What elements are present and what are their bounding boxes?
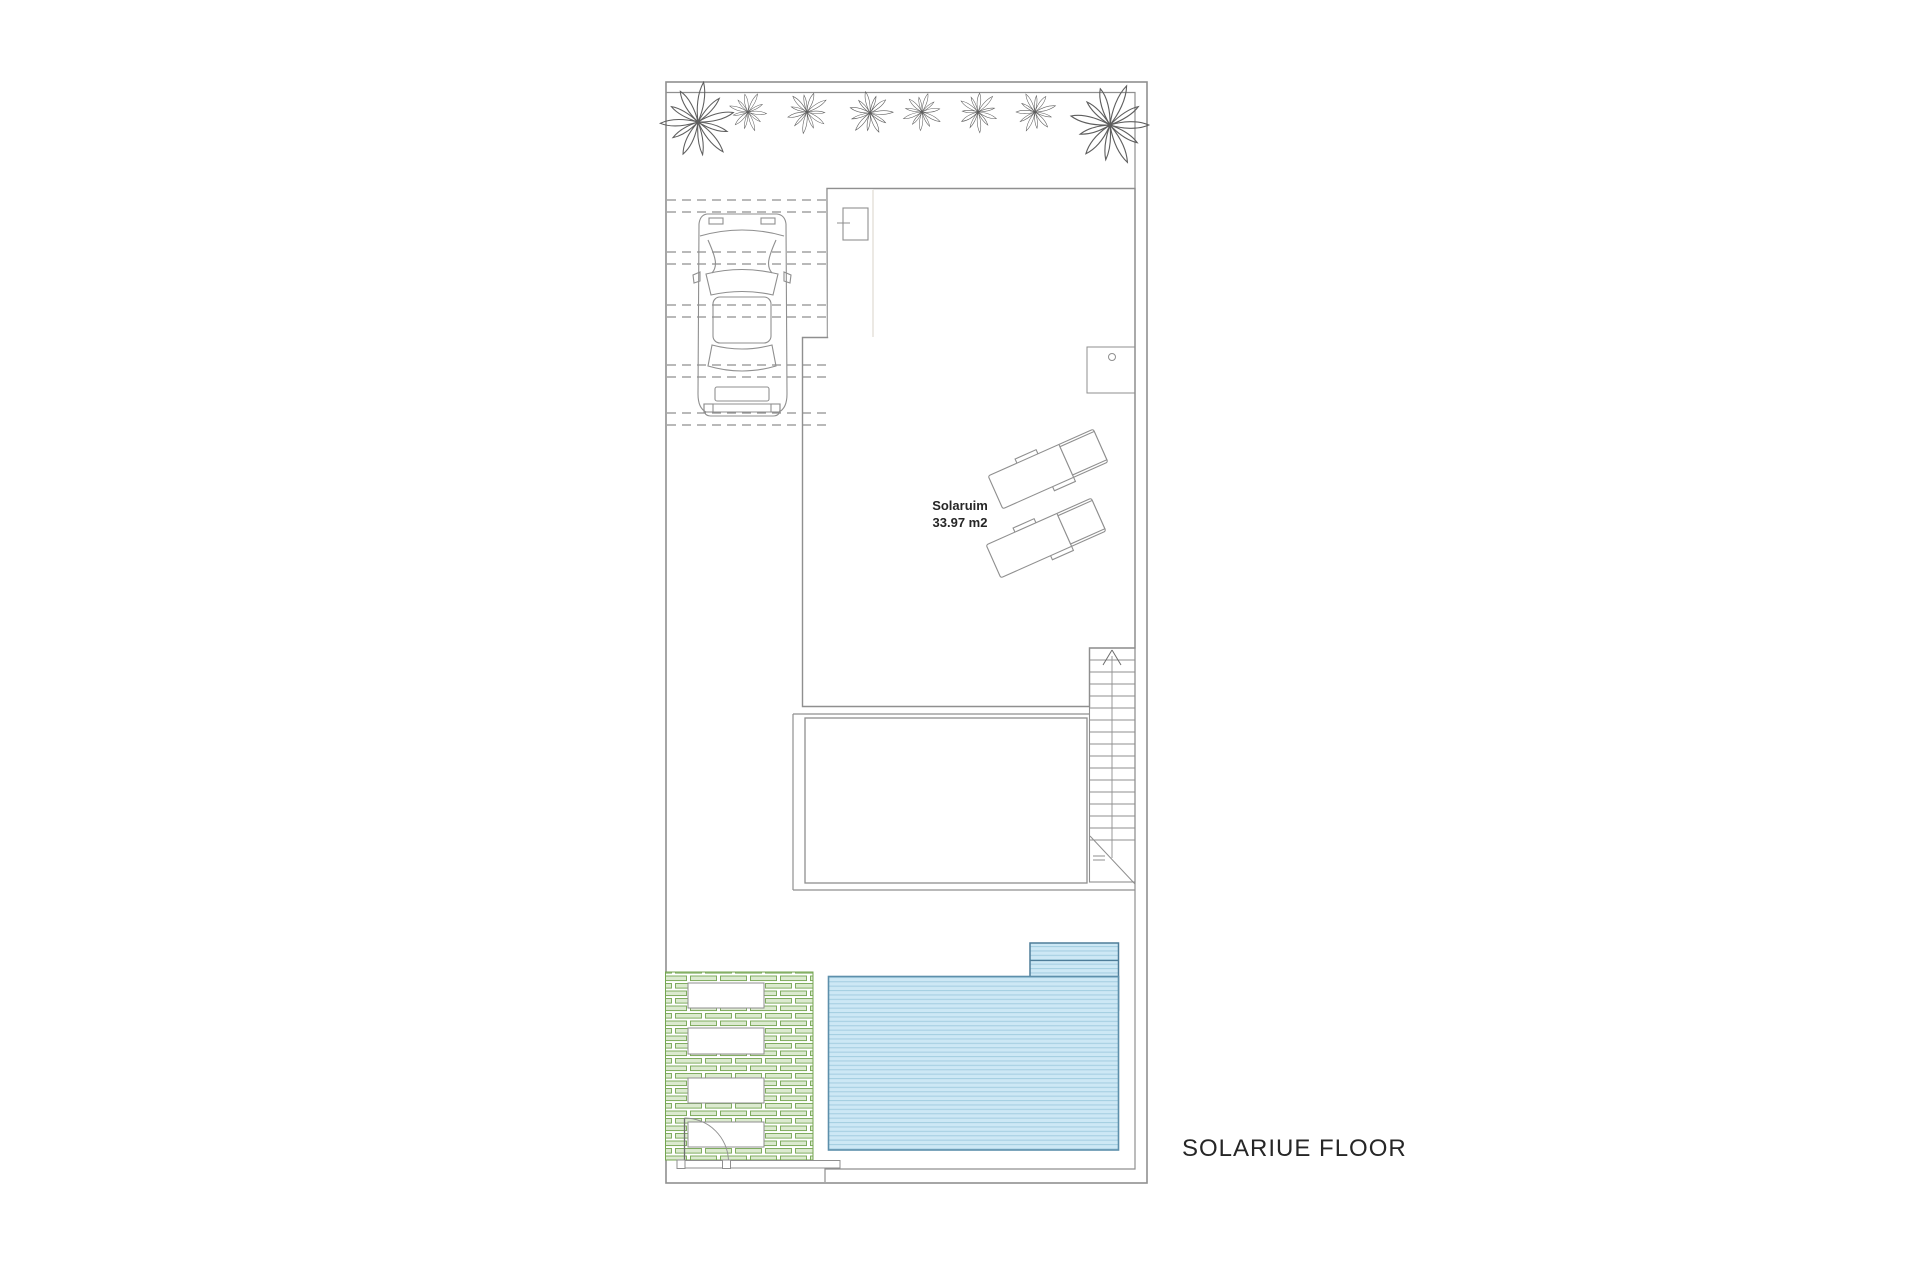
- solarium-name: Solaruim: [932, 498, 988, 513]
- floor-plan-canvas: Solaruim 33.97 m2 SOLARIUE FLOOR: [0, 0, 1920, 1280]
- stair-break-line: [1090, 836, 1135, 884]
- palm-tree-icon: [724, 86, 772, 134]
- solarium-area: 33.97 m2: [933, 515, 988, 530]
- deck-entry-landing: [828, 189, 873, 336]
- stair-treads: [1090, 660, 1135, 840]
- planter-opening: [688, 1122, 764, 1147]
- door-post: [677, 1160, 685, 1169]
- staircase: [1090, 648, 1136, 884]
- solarium-label: Solaruim 33.97 m2: [932, 498, 988, 530]
- floor-plan-page: Solaruim 33.97 m2 SOLARIUE FLOOR: [0, 0, 1920, 1280]
- palm-tree-icon: [951, 83, 1006, 138]
- threshold-walkway: [677, 1160, 840, 1169]
- planter-opening: [688, 1028, 764, 1054]
- car: [693, 214, 791, 416]
- lower-terrace: [793, 714, 1135, 890]
- outdoor-shower-pad: [1087, 347, 1135, 393]
- door-post: [723, 1160, 731, 1169]
- swimming-pool: [829, 943, 1119, 1150]
- planter-opening: [688, 1078, 764, 1103]
- palm-trees: [660, 74, 1158, 170]
- lower-deck-surface: [805, 718, 1087, 883]
- palm-tree-icon: [1062, 74, 1158, 170]
- green-deck: [666, 972, 814, 1162]
- car-body: [698, 214, 787, 412]
- floor-title: SOLARIUE FLOOR: [1182, 1135, 1407, 1162]
- palm-tree-icon: [847, 88, 896, 137]
- palm-tree-icon: [900, 88, 948, 136]
- sun-loungers: [984, 425, 1109, 582]
- planter-opening: [688, 983, 764, 1008]
- pool-basin: [829, 977, 1119, 1151]
- terrace-edge-lines: [793, 714, 1135, 890]
- palm-tree-icon: [779, 81, 837, 139]
